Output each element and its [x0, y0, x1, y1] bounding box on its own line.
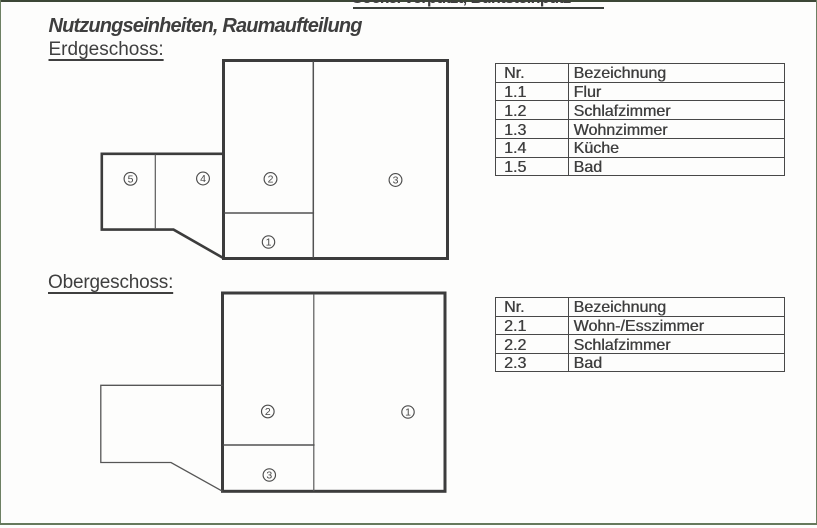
svg-text:1: 1 [266, 237, 272, 249]
svg-text:5: 5 [128, 174, 134, 186]
svg-text:1: 1 [405, 407, 411, 419]
svg-text:2: 2 [268, 174, 274, 186]
svg-text:2: 2 [265, 406, 271, 418]
svg-text:3: 3 [393, 175, 399, 187]
svg-text:3: 3 [266, 470, 272, 482]
svg-text:4: 4 [200, 173, 206, 185]
